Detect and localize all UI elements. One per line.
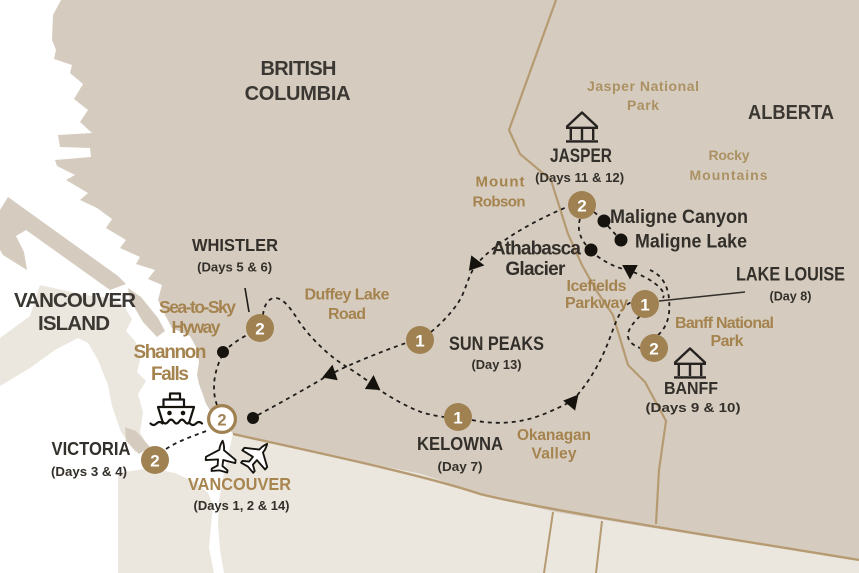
svg-text:2: 2 [217, 412, 226, 430]
svg-text:Glacier: Glacier [505, 259, 566, 280]
svg-text:(Day 13): (Day 13) [472, 358, 522, 372]
svg-text:2: 2 [255, 320, 264, 339]
svg-text:COLUMBIA: COLUMBIA [245, 83, 351, 105]
svg-text:(Days 3 & 4): (Days 3 & 4) [51, 465, 127, 479]
svg-text:(Days 9 & 10): (Days 9 & 10) [646, 401, 741, 415]
svg-text:ISLAND: ISLAND [38, 312, 110, 335]
svg-text:2: 2 [649, 340, 658, 359]
svg-text:(Days 5 & 6): (Days 5 & 6) [197, 261, 272, 275]
svg-text:Duffey Lake: Duffey Lake [305, 287, 390, 304]
svg-text:Jasper National: Jasper National [587, 78, 699, 94]
svg-text:Road: Road [328, 306, 366, 323]
svg-text:Parkway: Parkway [565, 295, 628, 312]
svg-text:Icefields: Icefields [567, 278, 627, 295]
svg-text:ALBERTA: ALBERTA [748, 101, 834, 124]
svg-text:1: 1 [640, 296, 649, 315]
svg-text:(Days 1, 2 & 14): (Days 1, 2 & 14) [194, 498, 290, 513]
svg-text:VANCOUVER: VANCOUVER [14, 289, 136, 312]
svg-text:Athabasca: Athabasca [492, 239, 581, 260]
svg-text:Maligne Canyon: Maligne Canyon [610, 206, 748, 228]
svg-text:SUN PEAKS: SUN PEAKS [449, 334, 544, 355]
svg-text:Hyway: Hyway [172, 317, 221, 337]
svg-text:2: 2 [150, 452, 159, 471]
svg-text:Sea-to-Sky: Sea-to-Sky [159, 297, 236, 317]
svg-text:Maligne Lake: Maligne Lake [635, 231, 747, 253]
svg-text:Mount: Mount [476, 174, 525, 191]
svg-text:Park: Park [627, 97, 659, 113]
svg-text:Robson: Robson [473, 194, 526, 211]
svg-text:Okanagan: Okanagan [517, 427, 591, 444]
svg-text:Rocky: Rocky [709, 147, 750, 163]
svg-text:Valley: Valley [532, 446, 577, 463]
svg-text:BANFF: BANFF [664, 378, 718, 398]
svg-text:1: 1 [415, 332, 424, 351]
svg-text:(Day 7): (Day 7) [438, 460, 483, 474]
svg-text:2: 2 [577, 197, 586, 216]
svg-text:KELOWNA: KELOWNA [417, 433, 503, 454]
svg-text:BRITISH: BRITISH [261, 58, 337, 80]
svg-text:VANCOUVER: VANCOUVER [188, 474, 291, 494]
svg-text:JASPER: JASPER [550, 146, 612, 167]
svg-text:WHISTLER: WHISTLER [192, 235, 278, 255]
svg-text:Mountains: Mountains [690, 167, 768, 183]
svg-text:Falls: Falls [151, 364, 189, 385]
svg-text:Banff National: Banff National [675, 315, 774, 332]
svg-text:Park: Park [711, 333, 744, 350]
svg-text:(Day 8): (Day 8) [770, 290, 812, 304]
svg-text:1: 1 [453, 409, 462, 428]
svg-text:Shannon: Shannon [134, 342, 207, 363]
svg-text:(Days 11 & 12): (Days 11 & 12) [535, 171, 624, 185]
svg-text:LAKE LOUISE: LAKE LOUISE [736, 265, 845, 286]
svg-text:VICTORIA: VICTORIA [52, 438, 131, 459]
